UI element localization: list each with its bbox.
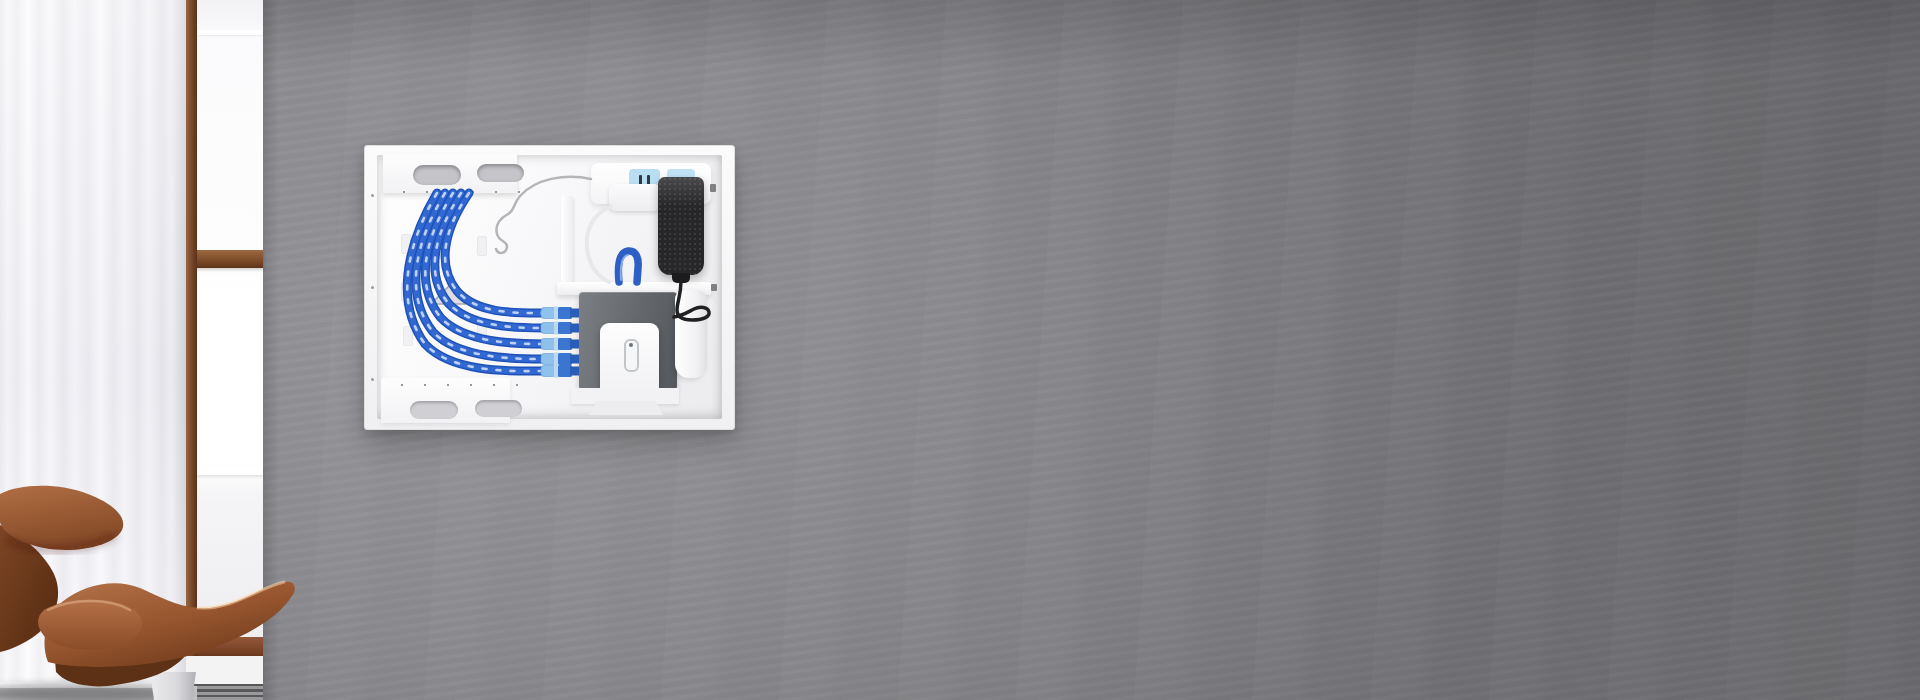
ethernet-cable <box>445 193 543 313</box>
window-top-line <box>197 30 263 35</box>
cable-loop <box>618 251 638 282</box>
rj45-connector <box>541 322 579 335</box>
patch-connectors <box>541 307 579 378</box>
ethernet-cable-bundle <box>407 193 543 371</box>
ethernet-cables <box>365 146 734 429</box>
white-cable <box>587 206 611 282</box>
rj45-connector <box>541 307 579 320</box>
rj45-connector <box>541 353 579 366</box>
lounge-chair <box>0 470 302 700</box>
media-enclosure <box>364 145 735 430</box>
rj45-connector <box>541 338 579 351</box>
rj45-connector <box>541 365 579 378</box>
chair-pedestal <box>150 672 196 700</box>
adapter-cord <box>674 281 709 320</box>
gray-wire <box>496 177 591 253</box>
